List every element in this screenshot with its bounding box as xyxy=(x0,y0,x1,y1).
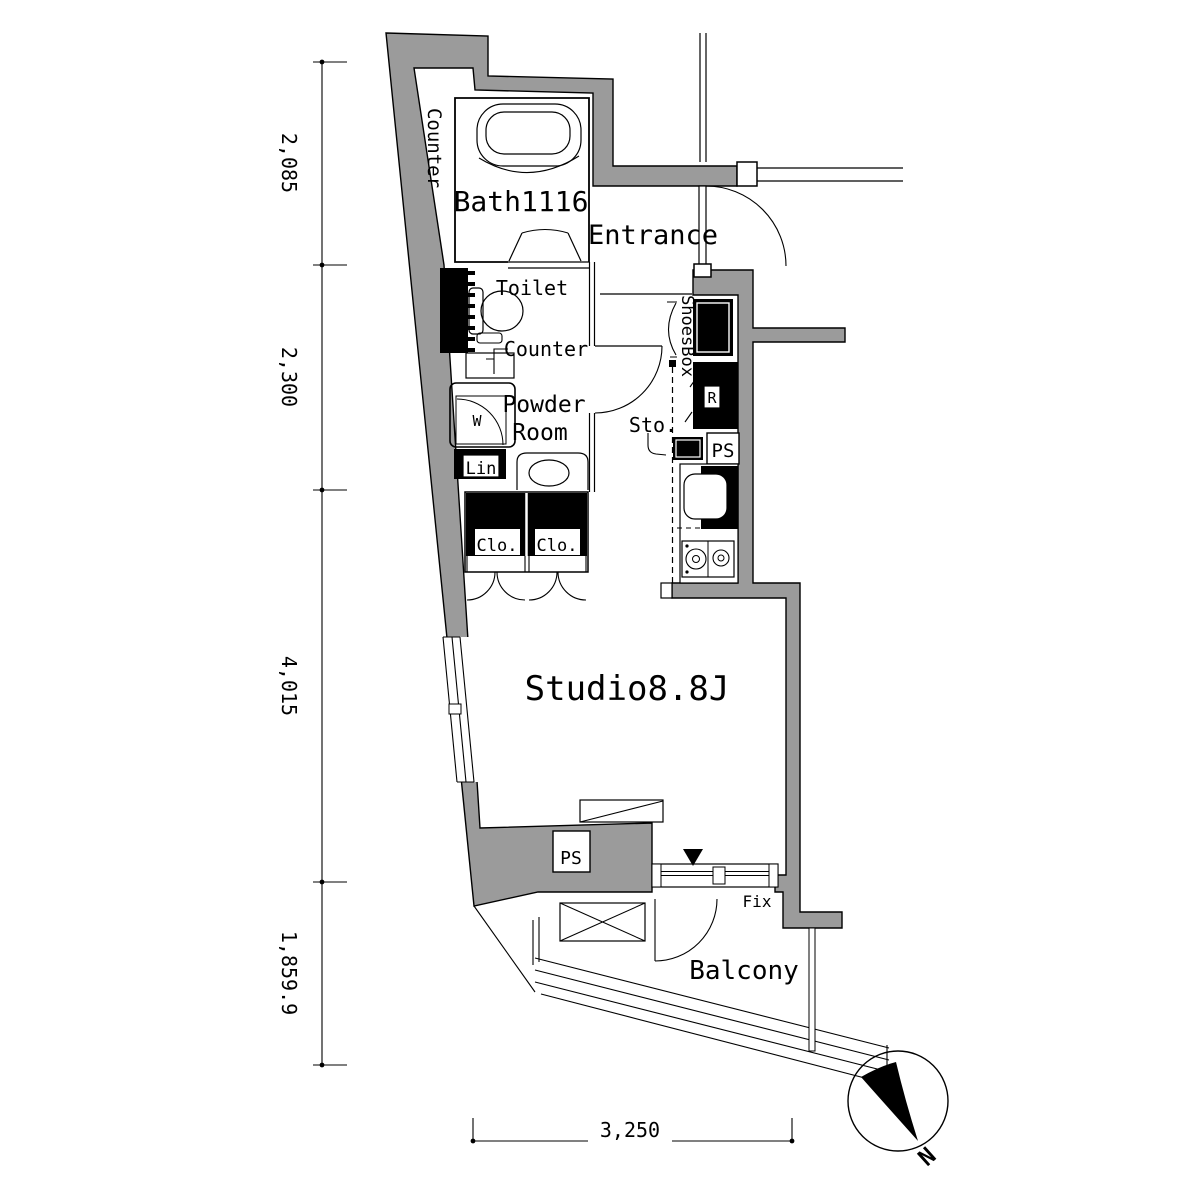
storage-box xyxy=(673,437,703,460)
closet-door-arcs xyxy=(467,572,586,600)
label-linen: Lin xyxy=(466,459,497,479)
label-powder-2: Room xyxy=(512,420,567,446)
swing-tick-2 xyxy=(685,412,692,422)
label-washer: W xyxy=(472,412,482,430)
toilet-control xyxy=(477,333,502,343)
dim-left-4: 1,859.9 xyxy=(277,931,301,1015)
stove xyxy=(682,541,734,577)
compass-north-label: N xyxy=(912,1141,940,1170)
bath-group xyxy=(455,98,589,268)
bathtub-outer xyxy=(477,104,581,166)
entrance-door-group xyxy=(600,33,903,294)
closet-door-hinges xyxy=(467,556,586,572)
bathtub-inner xyxy=(486,112,570,154)
bath-bifold-door-right xyxy=(568,233,581,261)
label-toilet-counter: Counter xyxy=(504,337,588,361)
label-balcony: Balcony xyxy=(689,956,799,986)
floor-plan: 2,085 2,300 4,015 1,859.9 3,250 N Counte… xyxy=(0,0,1200,1200)
studio-shelf xyxy=(580,800,663,822)
label-powder-1: Powder xyxy=(502,392,585,418)
dashed-line-origin-dot xyxy=(669,360,676,367)
label-ps-kitchen: PS xyxy=(712,440,735,462)
label-ps-studio: PS xyxy=(560,848,582,869)
label-closet-right: Clo. xyxy=(537,536,578,556)
dim-bottom: 3,250 xyxy=(600,1118,660,1142)
dim-left-3: 4,015 xyxy=(277,656,301,716)
studio-left-window xyxy=(441,637,482,782)
powder-basin xyxy=(529,460,569,486)
floor-plan-drawing: 2,085 2,300 4,015 1,859.9 3,250 N Counte… xyxy=(0,0,1200,1200)
shoesbox-door-curve xyxy=(667,302,677,357)
kitchen-counter xyxy=(677,464,738,583)
balcony-ac-unit xyxy=(560,903,645,941)
label-entrance: Entrance xyxy=(588,220,718,251)
balcony-window xyxy=(652,864,778,887)
compass-needle xyxy=(861,1062,918,1141)
label-refrigerator: R xyxy=(707,389,717,407)
label-closet-left: Clo. xyxy=(477,536,518,556)
compass: N xyxy=(848,1051,948,1169)
bath-bifold-door-left xyxy=(509,233,522,261)
powder-door-swing-arc xyxy=(595,346,662,413)
door-frame-bottom xyxy=(694,264,711,277)
label-studio: Studio8.8J xyxy=(525,669,730,709)
kitchen-sink xyxy=(684,474,727,519)
shoes-box xyxy=(693,299,733,356)
dim-left-1: 2,085 xyxy=(277,133,301,193)
balcony-railing xyxy=(474,906,889,1090)
wall-end-cap xyxy=(661,583,672,598)
label-storage: Sto. xyxy=(629,413,677,437)
label-shoesbox: ShoesBox xyxy=(677,295,697,377)
powder-vanity xyxy=(517,453,588,490)
door-frame-top xyxy=(737,162,757,186)
toilet-cabinet xyxy=(440,268,468,353)
balcony-partition xyxy=(809,928,815,1051)
bath-bifold-door-top xyxy=(522,230,568,234)
powder-hall-partition xyxy=(590,262,595,492)
balcony-door-swing-arc xyxy=(655,899,717,961)
label-counter-left: Counter xyxy=(423,108,445,188)
dim-left-2: 2,300 xyxy=(277,347,301,407)
label-toilet: Toilet xyxy=(496,276,568,300)
label-bath: Bath1116 xyxy=(454,185,589,218)
label-fix: Fix xyxy=(743,892,772,911)
